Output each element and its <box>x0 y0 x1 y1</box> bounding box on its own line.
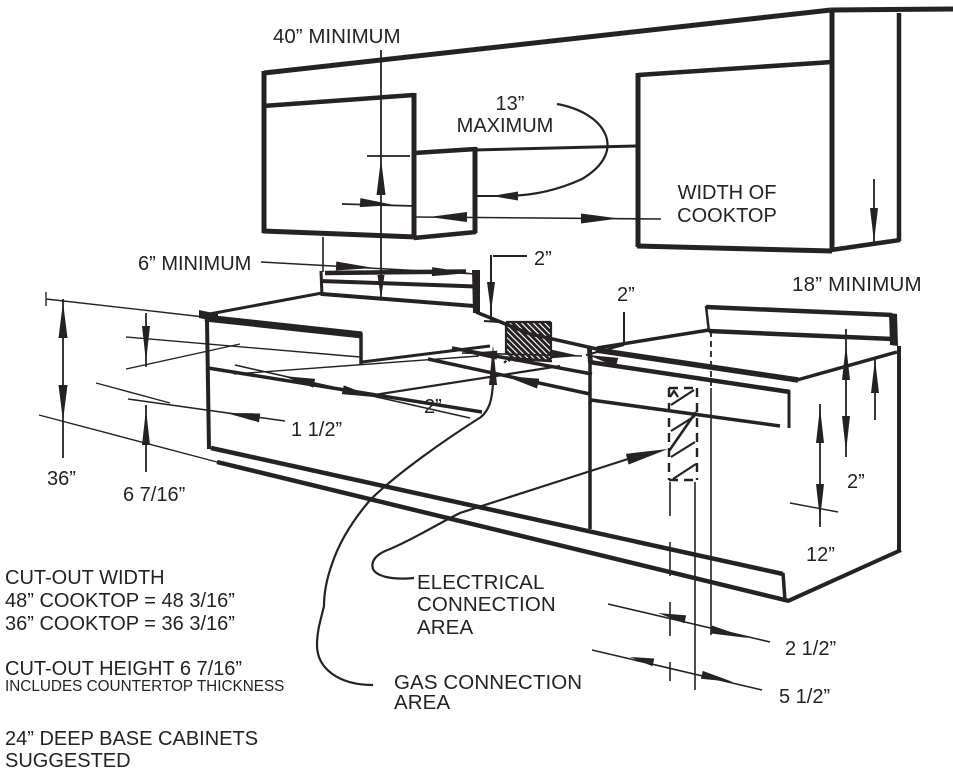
svg-text:36” COOKTOP = 36 3/16”: 36” COOKTOP = 36 3/16” <box>5 613 235 635</box>
svg-text:WIDTH OF: WIDTH OF <box>678 182 777 204</box>
svg-text:24” DEEP BASE CABINETS: 24” DEEP BASE CABINETS <box>5 728 258 750</box>
svg-text:COOKTOP: COOKTOP <box>677 205 777 227</box>
svg-text:INCLUDES COUNTERTOP THICKNESS: INCLUDES COUNTERTOP THICKNESS <box>5 678 284 695</box>
svg-text:2”: 2” <box>847 471 865 493</box>
svg-text:SUGGESTED: SUGGESTED <box>5 750 131 769</box>
svg-text:6 7/16”: 6 7/16” <box>123 484 185 506</box>
svg-text:48” COOKTOP = 48 3/16”: 48” COOKTOP = 48 3/16” <box>5 590 235 612</box>
svg-text:12”: 12” <box>806 544 835 566</box>
svg-text:18” MINIMUM: 18” MINIMUM <box>792 273 922 296</box>
svg-text:CUT-OUT HEIGHT 6 7/16”: CUT-OUT HEIGHT 6 7/16” <box>5 658 242 680</box>
svg-text:MAXIMUM: MAXIMUM <box>457 115 554 137</box>
svg-text:6” MINIMUM: 6” MINIMUM <box>138 253 251 275</box>
svg-text:2 1/2”: 2 1/2” <box>785 638 836 660</box>
svg-text:1 1/2”: 1 1/2” <box>291 419 342 441</box>
svg-text:40” MINIMUM: 40” MINIMUM <box>273 25 401 48</box>
svg-text:2”: 2” <box>534 248 552 270</box>
svg-text:AREA: AREA <box>394 691 450 714</box>
svg-text:13”: 13” <box>496 93 525 115</box>
svg-text:2”: 2” <box>617 284 635 306</box>
svg-text:5 1/2”: 5 1/2” <box>779 686 830 708</box>
svg-text:CUT-OUT WIDTH: CUT-OUT WIDTH <box>5 567 165 589</box>
svg-text:36”: 36” <box>47 468 76 490</box>
svg-text:ELECTRICAL: ELECTRICAL <box>417 571 544 594</box>
svg-text:AREA: AREA <box>417 616 473 639</box>
svg-text:2”: 2” <box>424 396 442 418</box>
svg-text:CONNECTION: CONNECTION <box>417 593 556 616</box>
